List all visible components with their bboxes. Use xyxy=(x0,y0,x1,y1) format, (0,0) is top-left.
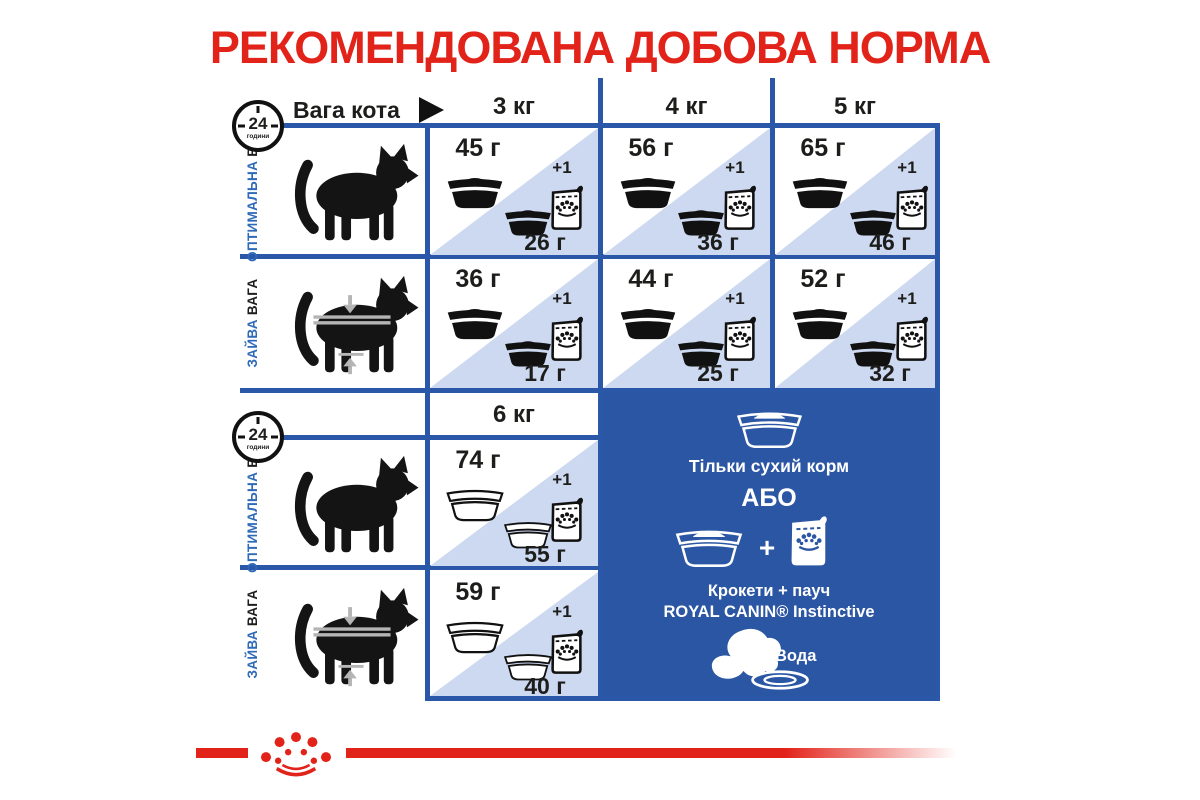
food-bowl-icon xyxy=(444,303,506,343)
feeding-options-panel: Тільки сухий корм АБО + Крокети + пауч R… xyxy=(603,393,935,696)
dry-amount: 52 г xyxy=(781,265,865,294)
mixed-feeding-line2: ROYAL CANIN® Instinctive xyxy=(603,603,935,622)
cat-silhouette-icon xyxy=(283,140,421,246)
cell-4kg-optimal: 56 г +1 36 г xyxy=(603,128,770,255)
wet-pouch-icon xyxy=(549,181,585,233)
plus-one-label: +1 xyxy=(542,289,582,309)
feeding-guide-infographic: РЕКОМЕНДОВАНА ДОБОВА НОРМА Тільки сухий … xyxy=(0,0,1200,800)
dry-amount: 56 г xyxy=(609,134,693,163)
food-bowl-icon xyxy=(789,172,851,212)
clock-tick xyxy=(271,436,278,439)
plus-one-label: +1 xyxy=(542,158,582,178)
clock-unit: години xyxy=(236,133,280,140)
food-bowl-icon xyxy=(617,172,679,212)
plus-one-label: +1 xyxy=(887,158,927,178)
mixed-amount: 32 г xyxy=(854,360,926,387)
row-label-overweight: ЗАЙВА ВАГА xyxy=(244,554,262,714)
food-bowl-icon xyxy=(673,524,745,570)
wet-pouch-icon xyxy=(894,312,930,364)
royal-canin-crown-icon xyxy=(250,730,342,780)
food-bowl-icon xyxy=(444,172,506,212)
dry-amount: 65 г xyxy=(781,134,865,163)
grid-line xyxy=(935,123,940,701)
clock-hours: 24 xyxy=(236,426,280,443)
wet-pouch-icon xyxy=(549,312,585,364)
clock-tick xyxy=(238,125,245,128)
mixed-amount: 17 г xyxy=(509,360,581,387)
clock-hours: 24 xyxy=(236,115,280,132)
plus-one-label: +1 xyxy=(715,289,755,309)
dry-amount: 74 г xyxy=(436,446,520,475)
clock-tick xyxy=(257,106,260,113)
cell-5kg-optimal: 65 г +1 46 г xyxy=(775,128,935,255)
wet-pouch-icon xyxy=(722,312,758,364)
grid-line xyxy=(425,696,940,701)
cell-3kg-overweight: 36 г +1 17 г xyxy=(430,259,598,388)
weight-header-label: Вага кота xyxy=(293,97,400,124)
plus-one-label: +1 xyxy=(542,602,582,622)
mixed-amount: 46 г xyxy=(854,229,926,256)
food-bowl-icon xyxy=(734,406,805,451)
footer-red-bar xyxy=(196,748,248,758)
wet-pouch-icon xyxy=(722,181,758,233)
food-bowl-icon xyxy=(444,616,506,656)
column-header-3kg: 3 кг xyxy=(430,94,598,120)
mixed-feeding-line1: Крокети + пауч xyxy=(603,582,935,601)
food-bowl-icon xyxy=(444,484,506,524)
row-label-word: ЗАЙВА xyxy=(245,319,260,367)
food-bowl-icon xyxy=(617,303,679,343)
mixed-amount: 55 г xyxy=(509,541,581,568)
dry-amount: 59 г xyxy=(436,578,520,607)
cell-5kg-overweight: 52 г +1 32 г xyxy=(775,259,935,388)
cat-silhouette-icon xyxy=(283,452,421,558)
dry-only-label: Тільки сухий корм xyxy=(603,456,935,477)
clock-tick xyxy=(257,417,260,424)
cat-with-measuring-tape-icon xyxy=(283,272,421,378)
page-title: РЕКОМЕНДОВАНА ДОБОВА НОРМА xyxy=(0,22,1200,74)
clock-tick xyxy=(238,436,245,439)
wet-pouch-icon xyxy=(894,181,930,233)
plus-sign: + xyxy=(753,532,781,564)
cell-4kg-overweight: 44 г +1 25 г xyxy=(603,259,770,388)
row-label-word: ЗАЙВА xyxy=(245,630,260,678)
plus-one-label: +1 xyxy=(542,470,582,490)
mixed-amount: 36 г xyxy=(682,229,754,256)
wet-pouch-icon xyxy=(789,511,829,569)
row-label-word: ВАГА xyxy=(245,590,260,627)
mixed-amount: 26 г xyxy=(509,229,581,256)
cell-6kg-overweight: 59 г +1 40 г xyxy=(430,572,598,696)
dry-amount: 36 г xyxy=(436,265,520,294)
food-bowl-icon xyxy=(789,303,851,343)
mixed-amount: 40 г xyxy=(509,673,581,700)
clock-tick xyxy=(271,125,278,128)
plus-one-label: +1 xyxy=(887,289,927,309)
mixed-amount: 25 г xyxy=(682,360,754,387)
cat-with-measuring-tape-icon xyxy=(283,584,421,690)
cell-6kg-optimal: 74 г +1 55 г xyxy=(430,440,598,566)
row-label-overweight: ЗАЙВА ВАГА xyxy=(244,243,262,403)
dry-amount: 45 г xyxy=(436,134,520,163)
wet-pouch-icon xyxy=(549,625,585,677)
cell-3kg-optimal: 45 г +1 26 г xyxy=(430,128,598,255)
row-label-word: ВАГА xyxy=(245,279,260,316)
24h-clock-icon: 24 години xyxy=(232,411,284,463)
clock-unit: години xyxy=(236,444,280,451)
24h-clock-icon: 24 години xyxy=(232,100,284,152)
dry-amount: 44 г xyxy=(609,265,693,294)
wet-pouch-icon xyxy=(549,493,585,545)
plus-one-label: +1 xyxy=(715,158,755,178)
or-label: АБО xyxy=(603,484,935,513)
water-label: Вода xyxy=(775,647,855,666)
footer-red-bar-fade xyxy=(346,748,956,758)
column-header-5kg: 5 кг xyxy=(775,94,935,120)
column-header-4kg: 4 кг xyxy=(603,94,770,120)
column-header-6kg: 6 кг xyxy=(430,402,598,428)
